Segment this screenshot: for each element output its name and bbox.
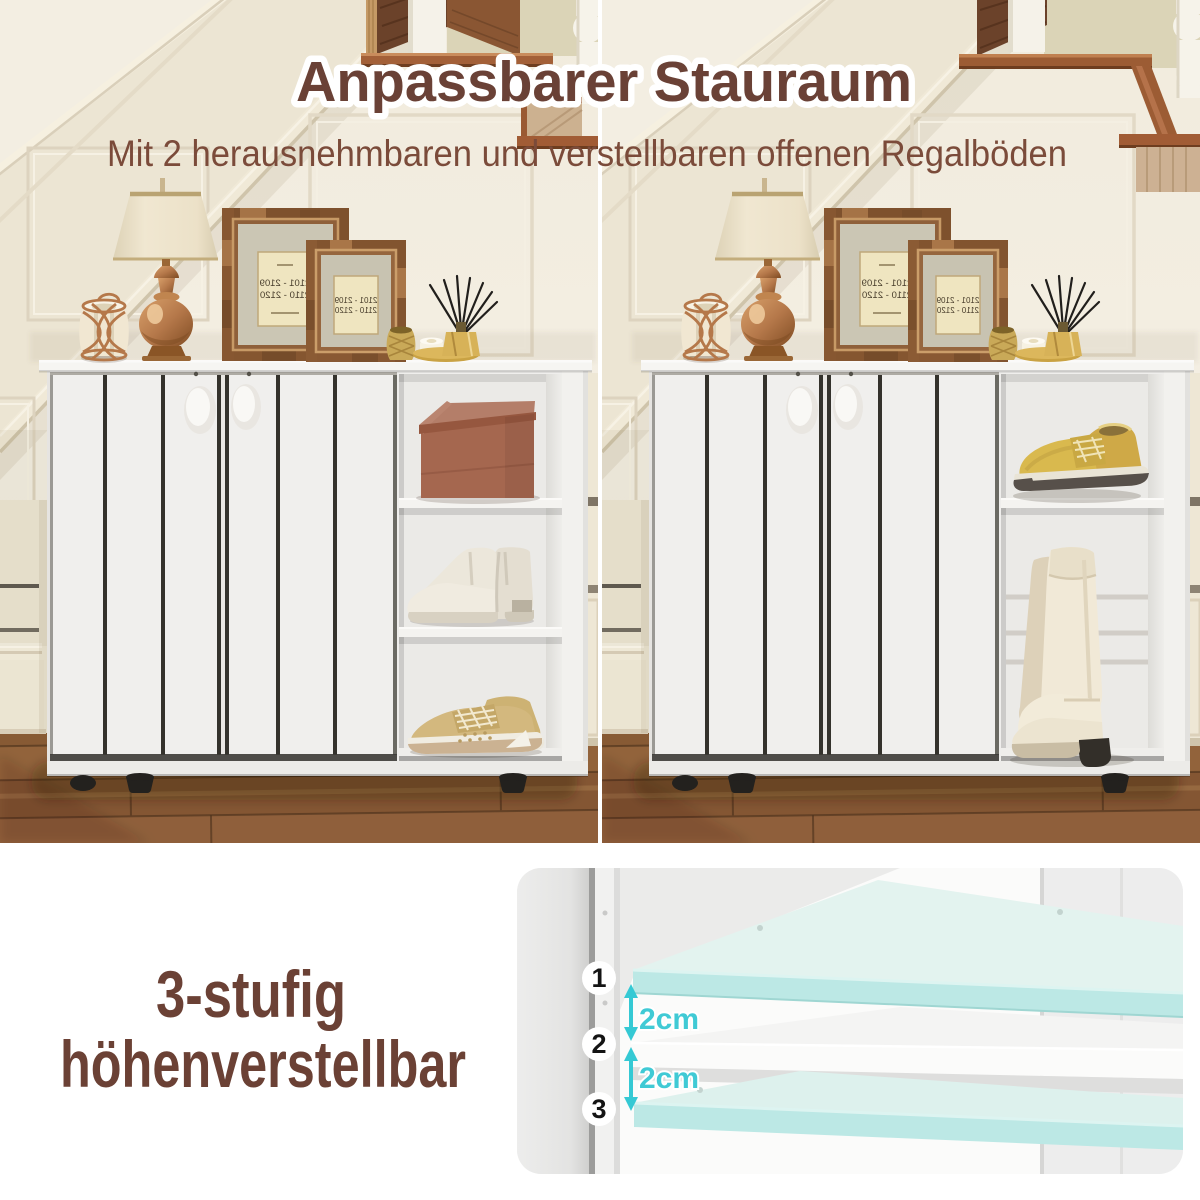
svg-text:3-stufig: 3-stufig bbox=[156, 957, 346, 1031]
svg-text:2cm: 2cm bbox=[639, 1003, 699, 1036]
svg-text:höhenverstellbar: höhenverstellbar bbox=[60, 1027, 466, 1101]
svg-text:Mit 2 herausnehmbaren und vers: Mit 2 herausnehmbaren und verstellbaren … bbox=[107, 133, 1067, 174]
svg-text:1: 1 bbox=[591, 963, 606, 993]
svg-text:2cm: 2cm bbox=[639, 1062, 699, 1095]
svg-text:2: 2 bbox=[591, 1029, 606, 1059]
svg-text:Anpassbarer Stauraum: Anpassbarer Stauraum bbox=[296, 50, 912, 114]
svg-text:3: 3 bbox=[591, 1094, 606, 1124]
